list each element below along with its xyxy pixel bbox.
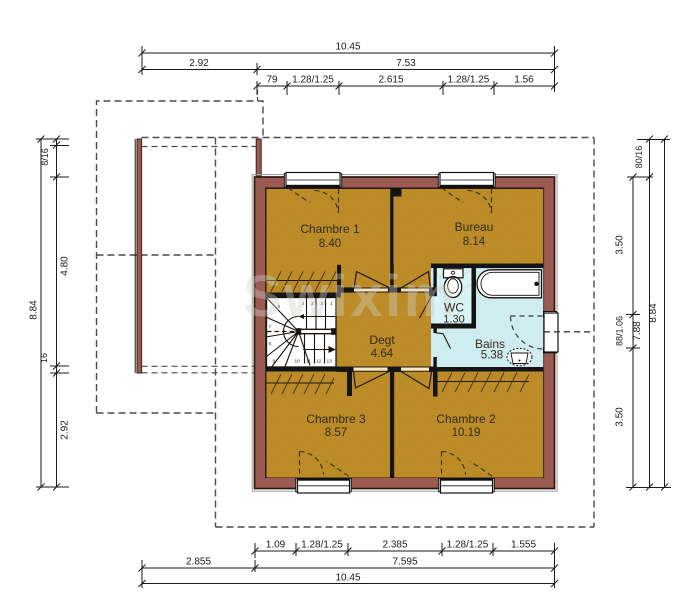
svg-text:1.28/1.25: 1.28/1.25 [448,75,490,86]
svg-text:10.45: 10.45 [335,573,360,584]
svg-text:8.14: 8.14 [463,236,486,248]
svg-text:7.88: 7.88 [632,321,643,341]
svg-text:1.28/1.25: 1.28/1.25 [301,540,343,551]
svg-text:2.385: 2.385 [382,540,407,551]
svg-text:79: 79 [266,75,278,86]
svg-text:8/16: 8/16 [40,148,50,166]
svg-text:1.09: 1.09 [266,540,286,551]
svg-text:1.28/1.25: 1.28/1.25 [447,540,489,551]
svg-text:10: 10 [295,359,301,365]
svg-text:Bureau: Bureau [455,220,494,234]
svg-text:1.555: 1.555 [511,540,536,551]
svg-text:Chambre 2: Chambre 2 [436,412,496,426]
svg-text:7.53: 7.53 [396,58,416,69]
svg-text:8.57: 8.57 [325,427,347,439]
svg-text:Swixim: Swixim [243,264,458,329]
svg-text:13: 13 [327,359,333,365]
svg-text:4.64: 4.64 [371,348,394,360]
svg-text:4.80: 4.80 [60,256,71,276]
svg-text:1.56: 1.56 [514,75,534,86]
svg-text:9: 9 [273,359,276,365]
svg-text:8.40: 8.40 [319,238,341,250]
svg-text:2.855: 2.855 [186,557,211,568]
svg-text:6: 6 [269,341,272,347]
svg-text:WC: WC [444,301,464,315]
svg-text:Chambre 3: Chambre 3 [306,412,366,426]
svg-text:2.615: 2.615 [378,75,403,86]
svg-text:3.50: 3.50 [615,235,626,255]
svg-text:12: 12 [316,359,322,365]
svg-text:Chambre 1: Chambre 1 [300,222,360,236]
svg-text:2.92: 2.92 [60,420,71,440]
svg-text:1.28/1.25: 1.28/1.25 [292,75,334,86]
svg-text:5.38: 5.38 [481,350,503,362]
svg-text:8.84: 8.84 [648,303,659,323]
svg-text:11: 11 [306,359,311,365]
svg-text:2.92: 2.92 [189,58,209,69]
svg-text:7.595: 7.595 [392,557,417,568]
svg-text:10.19: 10.19 [452,427,481,439]
svg-text:16: 16 [39,353,49,363]
svg-text:8.84: 8.84 [29,300,40,320]
svg-text:80/16: 80/16 [634,146,644,169]
svg-text:3.50: 3.50 [615,407,626,427]
svg-text:Degt: Degt [369,333,395,347]
svg-text:1.30: 1.30 [443,314,464,326]
svg-text:88/1.06: 88/1.06 [615,316,625,346]
svg-text:10.45: 10.45 [335,42,360,53]
